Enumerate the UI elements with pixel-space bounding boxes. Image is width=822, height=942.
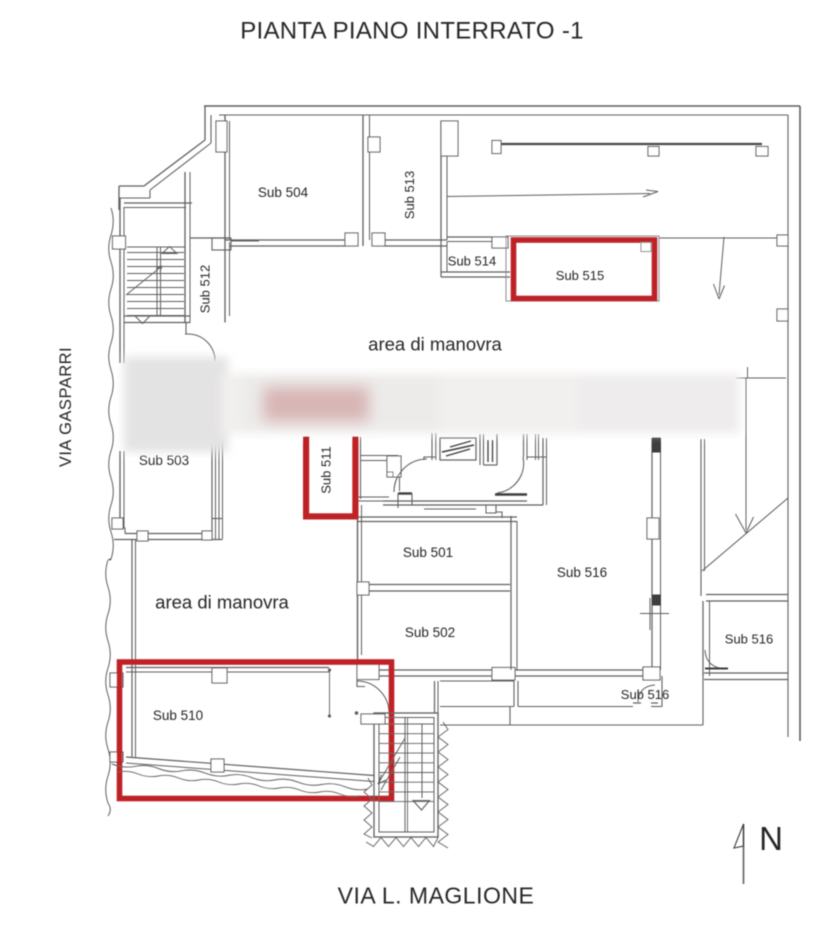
svg-text:Sub 512: Sub 512 [198,265,213,313]
svg-text:area di manovra: area di manovra [155,592,289,613]
svg-text:Sub 514: Sub 514 [448,254,496,269]
svg-text:Sub 511: Sub 511 [319,446,334,493]
svg-text:Sub 501: Sub 501 [403,545,453,560]
svg-text:Sub 516: Sub 516 [557,565,607,580]
svg-text:PIANTA PIANO INTERRATO -1: PIANTA PIANO INTERRATO -1 [240,18,584,45]
svg-text:VIA L. MAGLIONE: VIA L. MAGLIONE [338,883,535,909]
svg-text:Sub 503: Sub 503 [139,453,189,468]
svg-text:VIA GASPARRI: VIA GASPARRI [57,347,75,467]
svg-text:Sub 510: Sub 510 [153,708,203,723]
svg-text:Sub 502: Sub 502 [405,625,455,640]
svg-text:N: N [759,820,783,857]
svg-text:Sub 516: Sub 516 [621,687,669,702]
svg-text:Sub 513: Sub 513 [402,171,417,219]
svg-text:Sub 504: Sub 504 [258,185,309,200]
svg-text:Sub 516: Sub 516 [725,632,773,647]
svg-text:Sub 515: Sub 515 [556,268,604,283]
svg-text:area di manovra: area di manovra [368,334,502,355]
